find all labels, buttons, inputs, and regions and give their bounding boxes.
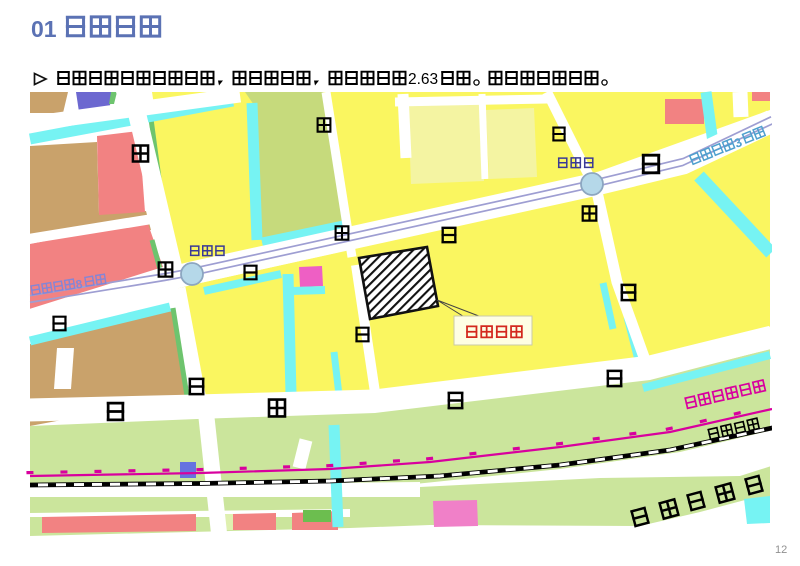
svg-text:2.63: 2.63 bbox=[408, 71, 438, 88]
svg-text:01: 01 bbox=[31, 16, 57, 42]
svg-text:12: 12 bbox=[775, 544, 787, 556]
